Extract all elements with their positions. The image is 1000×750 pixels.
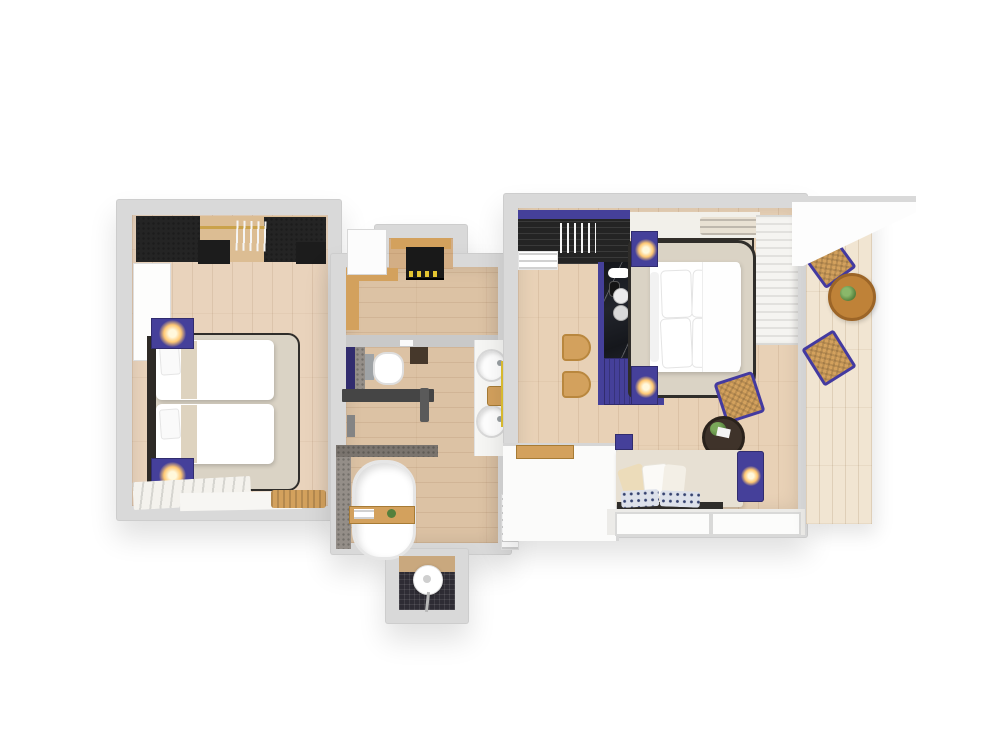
room-balcony: [0, 0, 1000, 750]
floorplan-canvas: [0, 0, 1000, 750]
balcony-plant: [840, 286, 856, 301]
